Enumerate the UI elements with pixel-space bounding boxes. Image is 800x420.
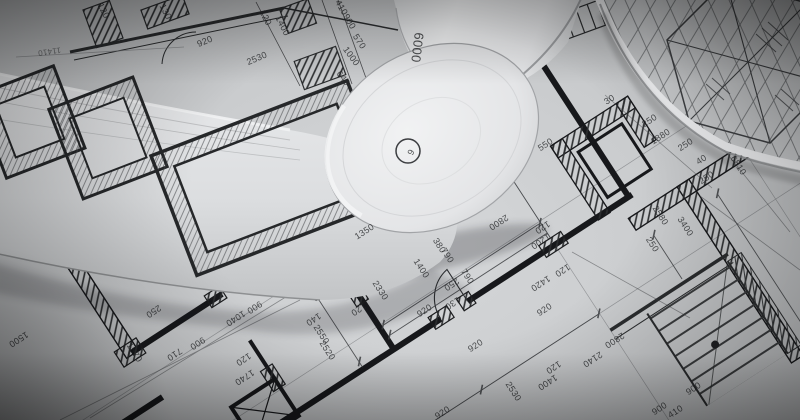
dimension-label: 920 xyxy=(466,337,485,354)
dimension-label: 920 xyxy=(433,404,452,420)
dimension-label: 920 xyxy=(535,301,554,318)
blueprint-photo: 1201309202530120140041090057010006406000… xyxy=(0,0,800,420)
dimension-label: 1740 xyxy=(233,368,256,388)
dimension-label: 120 xyxy=(553,262,572,279)
dimension-label: 250 xyxy=(644,235,661,254)
staircase xyxy=(610,247,800,420)
dimension-label: 410 xyxy=(666,403,685,420)
dimension-label: 550 xyxy=(536,136,555,153)
dimension-label: 11410 xyxy=(37,45,61,57)
blueprint-scene: 1201309202530120140041090057010006406000… xyxy=(0,0,800,420)
dimension-label: 790 xyxy=(459,267,476,286)
dimension-label: 2530 xyxy=(245,49,268,67)
dimension-label: 2800 xyxy=(603,331,626,351)
dimension-label: 1400 xyxy=(536,373,559,393)
dimension-label: 250 xyxy=(640,112,659,129)
dimension-label: 900 xyxy=(650,400,669,417)
dimension-label: 710 xyxy=(165,346,184,363)
dimension-label: 2530 xyxy=(504,380,524,403)
dimension-label: 120 xyxy=(234,351,253,368)
dimension-label: 2140 xyxy=(581,350,604,370)
dimension-label: 40 xyxy=(694,152,708,166)
dimension-label: 3400 xyxy=(676,215,696,238)
dimension-label: 1500 xyxy=(7,330,30,350)
dimension-label: 920 xyxy=(196,34,215,49)
dimension-label: 2520 xyxy=(318,339,338,362)
dimension-label: 900 xyxy=(341,12,358,31)
dimension-label: 1420 xyxy=(529,274,552,294)
dimension-label: 570 xyxy=(351,32,368,51)
